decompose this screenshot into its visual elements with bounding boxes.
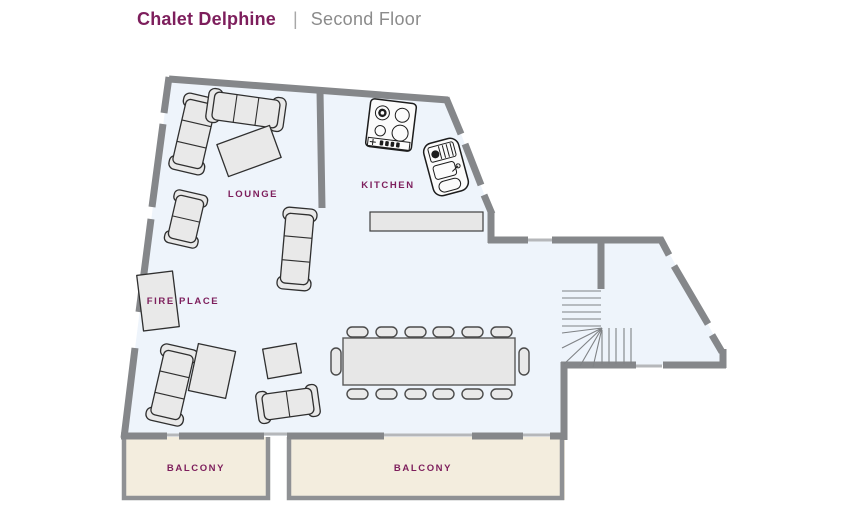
dining-chair <box>376 327 397 337</box>
lounge-label: LOUNGE <box>228 189 278 200</box>
dining-chair <box>491 327 512 337</box>
fireplace-label: FIRE PLACE <box>147 296 219 307</box>
dining-chair <box>347 327 368 337</box>
dining-chair <box>491 389 512 399</box>
floorplan-drawing: LOUNGE KITCHEN FIRE PLACE BALCONY BALCON… <box>0 0 847 525</box>
kitchen-label: KITCHEN <box>361 180 414 191</box>
balcony-right-label: BALCONY <box>394 463 452 474</box>
balcony-left-label: BALCONY <box>167 463 225 474</box>
dining-chair <box>519 348 529 375</box>
dining-chair <box>462 389 483 399</box>
floorplan-page: Chalet Delphine | Second Floor <box>0 0 847 525</box>
dining-table <box>343 338 515 385</box>
stove-icon <box>365 98 417 151</box>
kitchen-counter <box>370 212 483 231</box>
dining-chair <box>433 327 454 337</box>
dining-chair <box>433 389 454 399</box>
dining-chair <box>331 348 341 375</box>
dining-chair <box>462 327 483 337</box>
side-table-icon <box>263 343 302 378</box>
dining-chair <box>405 327 426 337</box>
dining-chair <box>347 389 368 399</box>
dining-chair <box>405 389 426 399</box>
dining-chair <box>376 389 397 399</box>
